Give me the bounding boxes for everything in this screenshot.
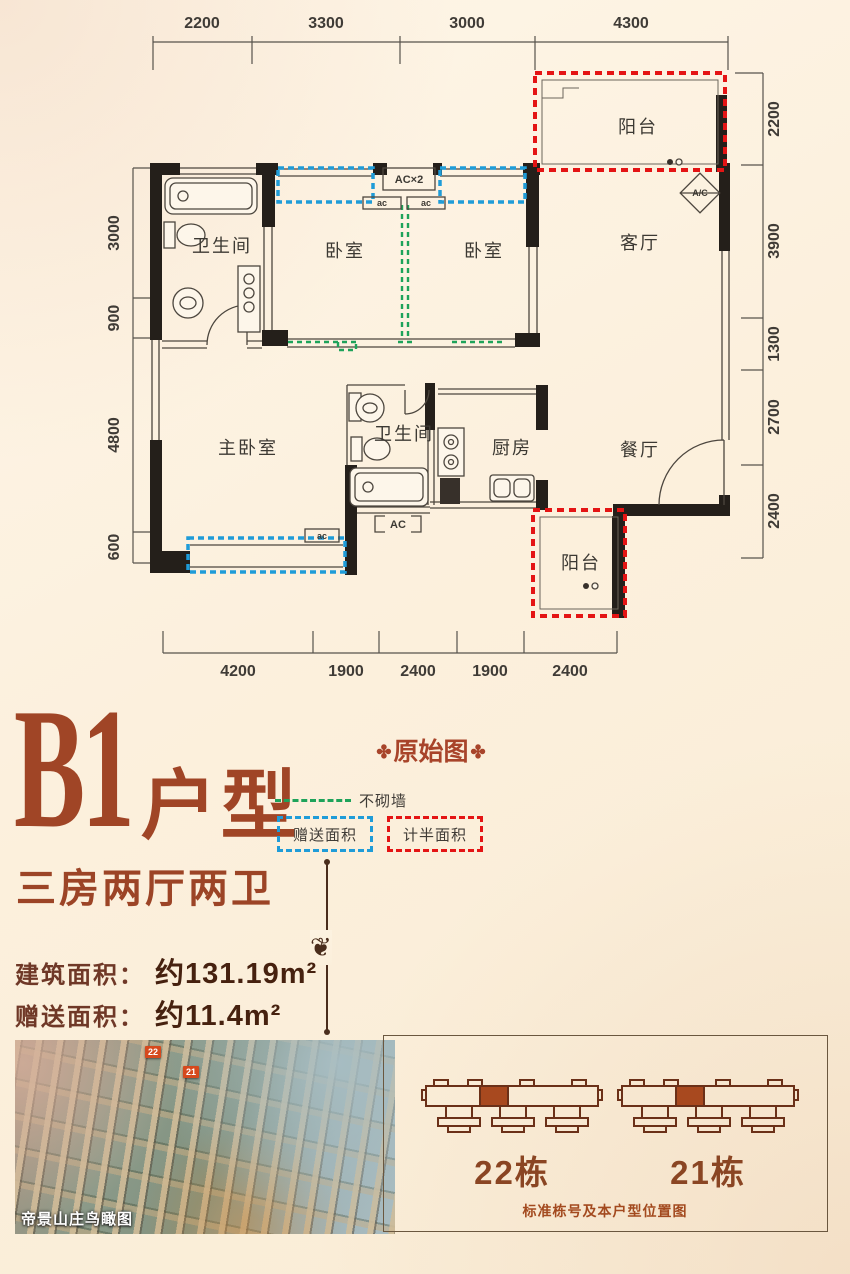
legend-no-wall-label: 不砌墙: [359, 790, 407, 811]
location-panel: 22栋 21栋 标准栋号及本户型位置图: [383, 1035, 828, 1232]
ac-small-left: ac: [377, 198, 387, 208]
legend-half-area: 计半面积: [387, 816, 483, 852]
gift-area-value: 约11.4m²: [155, 1000, 281, 1032]
building-area-row: 建筑面积：约131.19m²: [15, 950, 317, 992]
building-marker-21: 21: [183, 1066, 199, 1078]
building-area-label: 建筑面积：: [15, 962, 145, 989]
ac-box-label: AC: [390, 519, 406, 531]
building-22-outline: [422, 1080, 602, 1132]
location-diagram: 22栋 21栋 标准栋号及本户型位置图: [384, 1036, 827, 1231]
room-label-master: 主卧室: [218, 438, 278, 458]
dim-right-4: 2400: [766, 493, 783, 529]
dim-bottom-2: 2400: [400, 663, 436, 680]
building-21-outline: [618, 1080, 798, 1132]
page: 2200 3300 3000 4300 4200 1900 2400 1900 …: [0, 0, 850, 1274]
legend-gift-area-label: 赠送面积: [293, 824, 357, 845]
room-label-bedroom2: 卧室: [464, 241, 504, 261]
dim-left-3: 600: [106, 534, 123, 561]
dim-top-2: 3000: [449, 15, 485, 32]
green-dash-icon: [275, 799, 351, 802]
location-caption: 标准栋号及本户型位置图: [522, 1203, 688, 1219]
ac-small-right: ac: [421, 198, 431, 208]
ac2-label: AC×2: [395, 174, 423, 186]
ornament-icon: ✤: [469, 742, 488, 762]
room-label-bedroom1: 卧室: [325, 241, 365, 261]
gift-area-row: 赠送面积：约11.4m²: [15, 992, 281, 1034]
room-label-bath2: 卫生间: [374, 424, 434, 444]
dim-bottom-0: 4200: [220, 663, 256, 680]
dim-right-1: 3900: [766, 223, 783, 259]
dim-left-0: 3000: [106, 215, 123, 251]
building-21-label: 21栋: [670, 1154, 746, 1191]
building-area-value: 约131.19m²: [155, 958, 317, 990]
dim-right-0: 2200: [766, 101, 783, 137]
aerial-photo: 22 21 帝景山庄鸟瞰图: [15, 1040, 395, 1234]
legend-half-area-label: 计半面积: [403, 824, 467, 845]
dim-bottom-1: 1900: [328, 663, 364, 680]
dim-top-0: 2200: [184, 15, 220, 32]
dim-bottom-3: 1900: [472, 663, 508, 680]
original-plan-label: 原始图: [393, 738, 468, 766]
no-wall-lines: [288, 205, 505, 350]
unit-code: B1: [14, 694, 131, 845]
dim-bottom-4: 2400: [552, 663, 588, 680]
photo-caption: 帝景山庄鸟瞰图: [21, 1208, 133, 1229]
room-label-living: 客厅: [620, 233, 660, 253]
dim-right-2: 1300: [766, 326, 783, 362]
ac-small-master: ac: [317, 531, 327, 541]
original-plan-title: ✤原始图✤: [356, 732, 506, 768]
room-label-dining: 餐厅: [620, 440, 660, 460]
dim-left-2: 4800: [106, 417, 123, 453]
room-label-bath1: 卫生间: [192, 236, 252, 256]
building-marker-22: 22: [145, 1046, 161, 1058]
dim-top-3: 4300: [613, 15, 649, 32]
legend-gift-area: 赠送面积: [277, 816, 373, 852]
legend-no-wall: 不砌墙: [275, 790, 407, 811]
dim-top-1: 3300: [308, 15, 344, 32]
ornament-icon: ✤: [374, 742, 393, 762]
building-22-label: 22栋: [474, 1154, 550, 1191]
fixtures: [164, 159, 682, 589]
dim-left-1: 900: [106, 305, 123, 332]
room-label-kitchen: 厨房: [492, 438, 532, 458]
unit-heading: B1 户型: [14, 694, 301, 845]
dim-right-3: 2700: [766, 399, 783, 435]
gift-area-label: 赠送面积：: [15, 1004, 145, 1031]
room-label-balcony-top: 阳台: [618, 117, 658, 137]
floor-plan: 2200 3300 3000 4300 4200 1900 2400 1900 …: [0, 0, 850, 700]
half-area-balconies: [533, 73, 725, 616]
unit-subtitle: 三房两厅两卫: [16, 856, 274, 914]
ac-diamond-label: A/C: [692, 188, 708, 198]
room-label-balcony-bottom: 阳台: [561, 553, 601, 573]
